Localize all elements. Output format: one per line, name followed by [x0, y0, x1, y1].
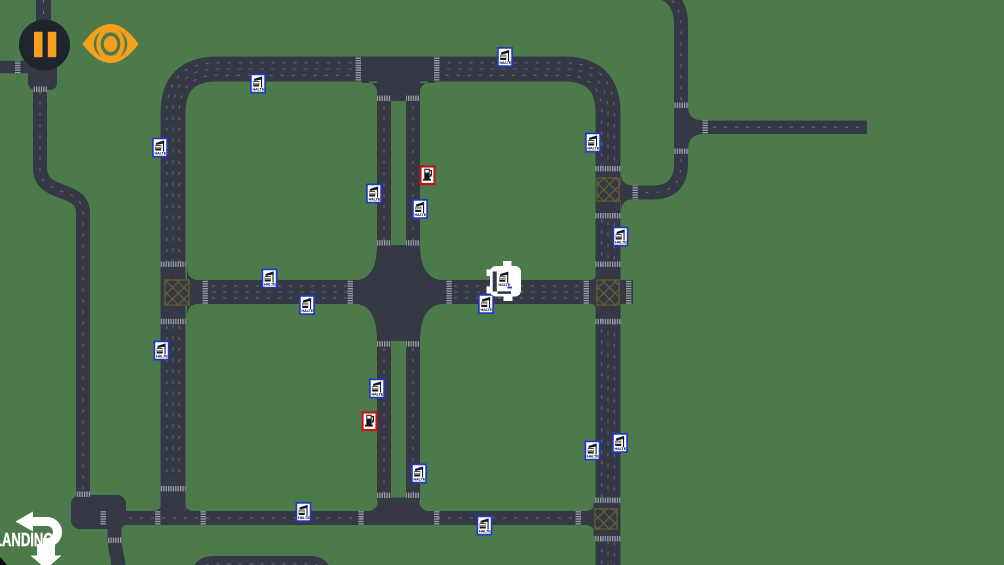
svg-text:LANDING: LANDING — [0, 529, 53, 550]
